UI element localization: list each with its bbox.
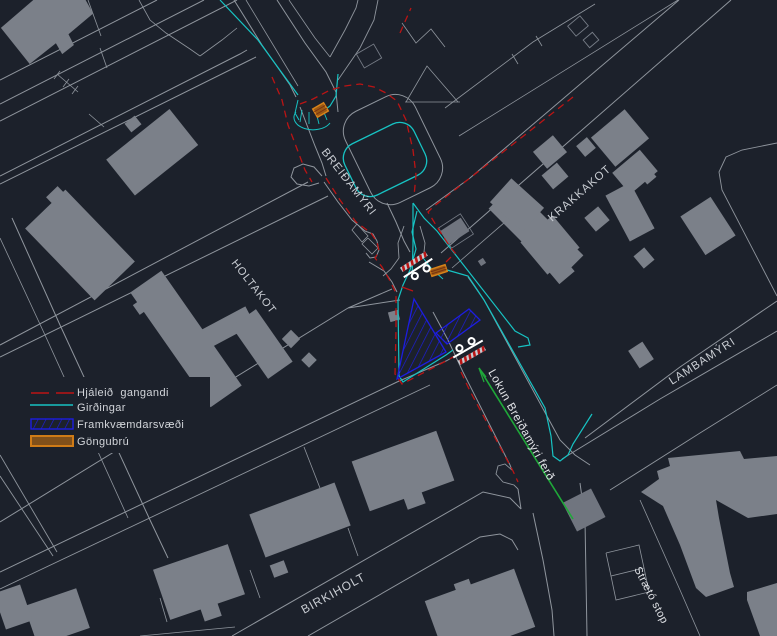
svg-text:Framkvæmdarsvæði: Framkvæmdarsvæði [77, 419, 184, 431]
svg-text:Hjáleið gangandi: Hjáleið gangandi [77, 387, 169, 399]
svg-text:Göngubrú: Göngubrú [77, 436, 129, 448]
svg-text:Girðingar: Girðingar [77, 402, 126, 414]
